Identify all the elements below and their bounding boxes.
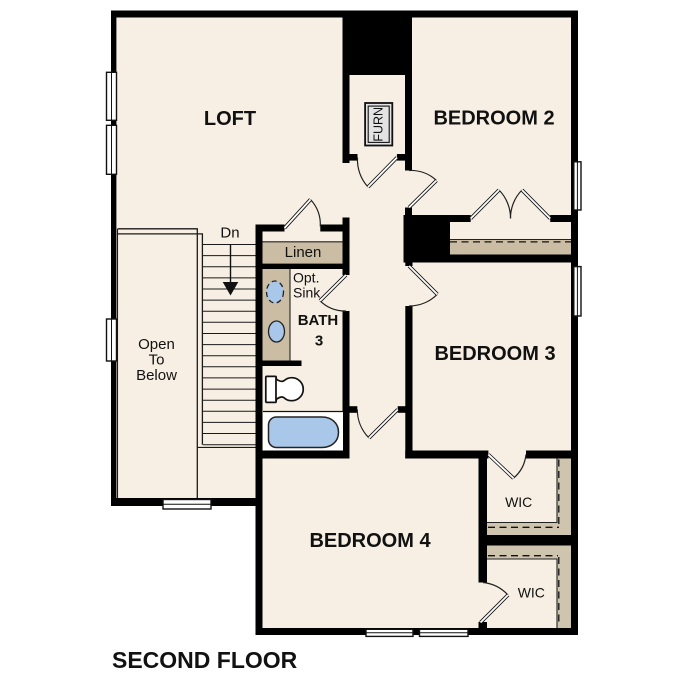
svg-text:BATH: BATH <box>298 312 339 329</box>
svg-text:Open: Open <box>138 336 175 353</box>
svg-text:SECOND FLOOR: SECOND FLOOR <box>112 647 298 673</box>
svg-text:WIC: WIC <box>505 494 532 510</box>
svg-text:BEDROOM 3: BEDROOM 3 <box>434 343 555 365</box>
svg-text:WIC: WIC <box>518 585 545 601</box>
svg-text:3: 3 <box>315 333 323 350</box>
svg-text:BEDROOM 4: BEDROOM 4 <box>309 530 431 552</box>
svg-text:BEDROOM 2: BEDROOM 2 <box>433 108 554 130</box>
svg-text:Below: Below <box>136 367 177 384</box>
svg-text:FURN: FURN <box>372 107 386 142</box>
svg-text:LOFT: LOFT <box>204 108 256 130</box>
svg-text:Opt.: Opt. <box>293 270 319 286</box>
svg-text:Linen: Linen <box>285 244 322 261</box>
svg-text:Dn: Dn <box>220 225 239 242</box>
svg-text:Sink: Sink <box>293 284 321 300</box>
